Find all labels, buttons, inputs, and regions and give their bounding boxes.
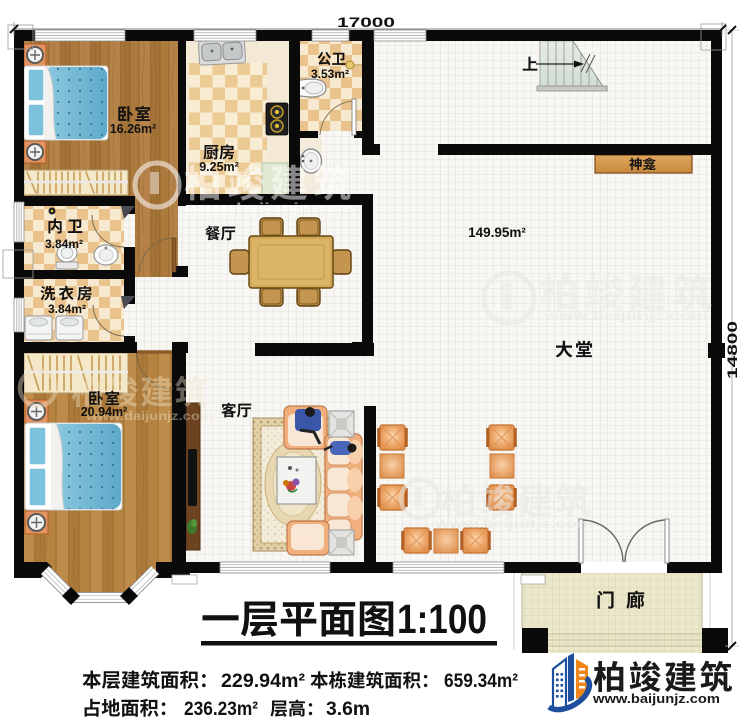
svg-text:www.beijunjz.com: www.beijunjz.com xyxy=(434,517,593,531)
svg-text:236.23m²: 236.23m² xyxy=(184,699,258,720)
svg-text:9.25m²: 9.25m² xyxy=(199,160,239,174)
svg-text:149.95m²: 149.95m² xyxy=(468,225,526,240)
svg-text:www.baijunjz.com: www.baijunjz.com xyxy=(184,201,354,215)
svg-text:3.6m: 3.6m xyxy=(326,699,370,720)
svg-text:16.26m²: 16.26m² xyxy=(110,122,157,136)
svg-text:17000: 17000 xyxy=(337,14,395,30)
svg-text:3.84m²: 3.84m² xyxy=(45,237,83,251)
svg-text:229.94m²: 229.94m² xyxy=(221,671,305,692)
svg-text:14800: 14800 xyxy=(724,321,740,379)
svg-text:20.94m²: 20.94m² xyxy=(81,405,128,419)
svg-text:3.53m²: 3.53m² xyxy=(311,67,349,81)
svg-text:www.baijunjz.com: www.baijunjz.com xyxy=(592,691,720,706)
svg-text:www.beijunjz.com: www.beijunjz.com xyxy=(542,309,708,323)
svg-text:3.84m²: 3.84m² xyxy=(48,302,86,316)
svg-text:1:100: 1:100 xyxy=(397,596,487,642)
svg-text:659.34m²: 659.34m² xyxy=(444,671,518,692)
